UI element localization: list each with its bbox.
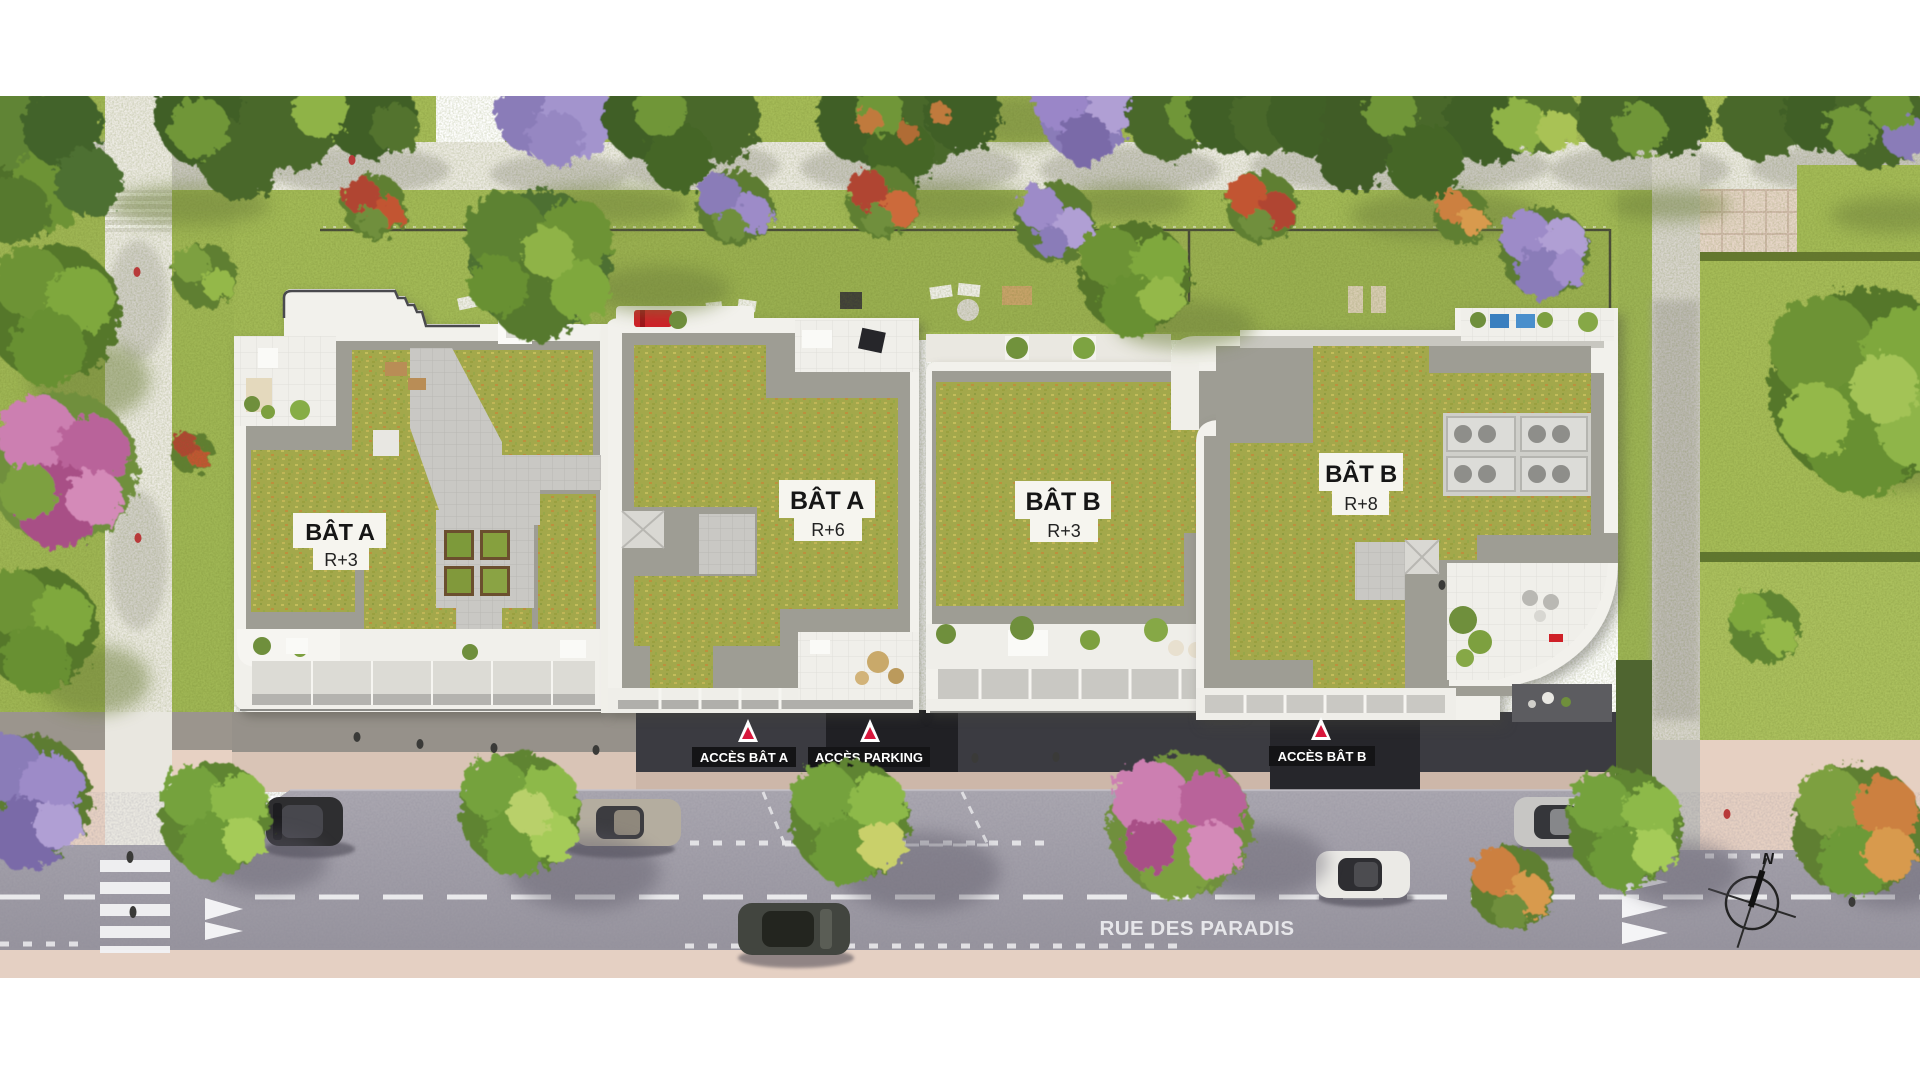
svg-text:ACCÈS BÂT B: ACCÈS BÂT B [1278, 749, 1367, 764]
svg-text:RUE DES PARADIS: RUE DES PARADIS [1099, 917, 1294, 940]
svg-text:BÂT B: BÂT B [1026, 486, 1101, 516]
svg-text:N: N [1762, 851, 1774, 868]
svg-text:BÂT A: BÂT A [790, 485, 864, 515]
svg-text:ACCÈS PARKING: ACCÈS PARKING [815, 750, 923, 765]
svg-text:BÂT A: BÂT A [305, 518, 375, 545]
svg-text:R+8: R+8 [1344, 494, 1378, 514]
svg-text:R+3: R+3 [324, 550, 358, 570]
svg-text:R+3: R+3 [1047, 521, 1081, 541]
svg-text:R+6: R+6 [811, 520, 845, 540]
svg-text:ACCÈS BÂT A: ACCÈS BÂT A [700, 750, 789, 765]
svg-text:BÂT B: BÂT B [1325, 460, 1397, 488]
